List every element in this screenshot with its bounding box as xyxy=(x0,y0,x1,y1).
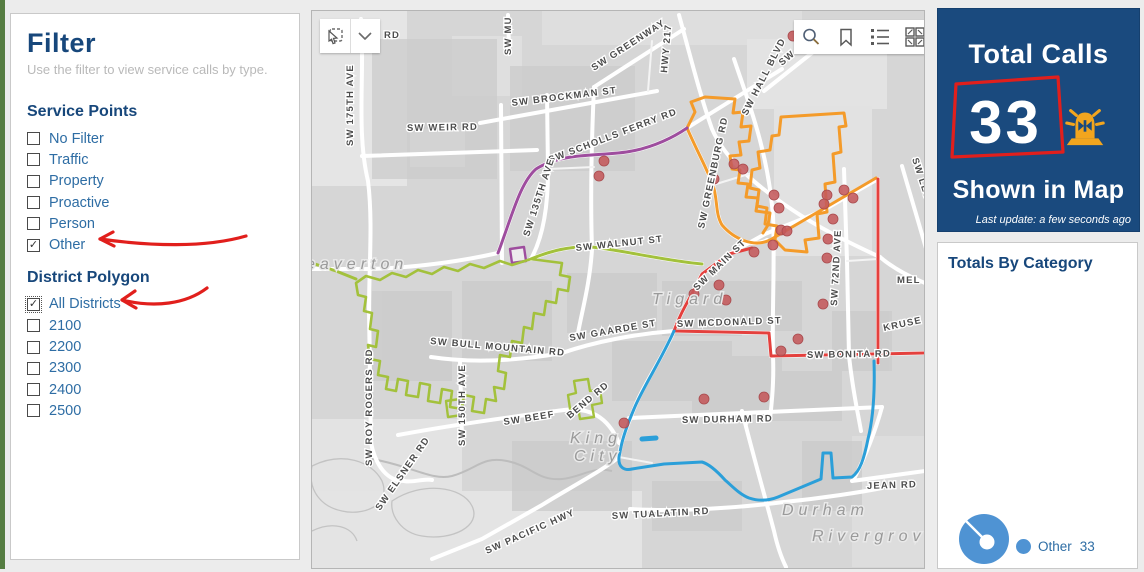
search-icon xyxy=(801,27,821,47)
checkbox[interactable]: ✓ xyxy=(27,239,40,252)
checkbox[interactable] xyxy=(27,196,40,209)
service-call-dot[interactable] xyxy=(819,199,829,209)
map-panel[interactable]: eavertonTigardKingCityDurhamRivergrove R… xyxy=(311,10,925,569)
street-label: SW 150TH AVE xyxy=(457,364,468,446)
checkbox-label: 2300 xyxy=(49,360,81,376)
district-polygon-header: District Polygon xyxy=(27,269,283,287)
select-dropdown-button[interactable] xyxy=(351,19,381,53)
checkbox-row-property[interactable]: Property xyxy=(27,171,283,192)
district-boundary-2500-blue-bar xyxy=(642,438,656,439)
checkbox-label: 2500 xyxy=(49,403,81,419)
service-call-dot[interactable] xyxy=(782,226,792,236)
service-call-dot[interactable] xyxy=(828,214,838,224)
service-call-dot[interactable] xyxy=(822,190,832,200)
service-call-dot[interactable] xyxy=(619,418,629,428)
legend-row-other[interactable]: Other 33 xyxy=(1016,539,1095,554)
total-calls-panel: Total Calls 33 Shown in Map Las xyxy=(937,8,1140,232)
checkbox[interactable] xyxy=(27,319,40,332)
service-call-dot[interactable] xyxy=(818,299,828,309)
legend-list-button[interactable] xyxy=(863,20,898,54)
service-call-dot[interactable] xyxy=(738,164,748,174)
checkbox-row-proactive[interactable]: Proactive xyxy=(27,192,283,213)
checkbox-label: Other xyxy=(49,237,85,253)
checkbox-row-person[interactable]: Person xyxy=(27,213,283,234)
checkbox-row-2500[interactable]: 2500 xyxy=(27,400,283,421)
checkbox-label: No Filter xyxy=(49,131,104,147)
legend-value: 33 xyxy=(1080,539,1095,554)
checkbox-row-all-districts[interactable]: ✓All Districts xyxy=(27,294,283,315)
service-call-dot[interactable] xyxy=(729,159,739,169)
street-label: SW BONITA RD xyxy=(807,349,891,361)
service-points-header: Service Points xyxy=(27,103,283,121)
city-label: Tigard xyxy=(652,291,727,308)
checkbox-label: Traffic xyxy=(49,152,88,168)
legend-swatch-other xyxy=(1016,539,1031,554)
checkbox[interactable] xyxy=(27,383,40,396)
checkbox-label: Person xyxy=(49,216,95,232)
checkbox-row-2100[interactable]: 2100 xyxy=(27,315,283,336)
service-call-dot[interactable] xyxy=(749,247,759,257)
checkbox-row-traffic[interactable]: Traffic xyxy=(27,149,283,170)
service-call-dot[interactable] xyxy=(759,392,769,402)
city-label: Rivergrove xyxy=(812,528,924,545)
service-call-dot[interactable] xyxy=(793,334,803,344)
checkbox-label: Proactive xyxy=(49,195,109,211)
service-call-dot[interactable] xyxy=(699,394,709,404)
street-label: SW DURHAM RD xyxy=(682,413,773,426)
service-call-dot[interactable] xyxy=(768,240,778,250)
filter-subtitle: Use the filter to view service calls by … xyxy=(27,62,283,77)
service-call-dot[interactable] xyxy=(839,185,849,195)
totals-by-category-panel: Totals By Category Other 33 xyxy=(937,242,1138,569)
checkbox-label: 2200 xyxy=(49,339,81,355)
select-tool-button[interactable] xyxy=(320,19,351,53)
checkbox-label: 2400 xyxy=(49,382,81,398)
left-edge-accent-strip xyxy=(0,0,5,569)
service-call-dot[interactable] xyxy=(776,346,786,356)
last-update-text: Last update: a few seconds ago xyxy=(976,214,1131,226)
city-label: City xyxy=(574,448,622,465)
chevron-down-icon xyxy=(357,31,373,41)
total-calls-title: Total Calls xyxy=(968,39,1108,70)
service-call-dot[interactable] xyxy=(774,203,784,213)
checkbox-row-no-filter[interactable]: No Filter xyxy=(27,128,283,149)
checkbox[interactable] xyxy=(27,153,40,166)
service-call-dot[interactable] xyxy=(599,156,609,166)
service-call-dot[interactable] xyxy=(769,190,779,200)
search-button[interactable] xyxy=(794,20,829,54)
street-label: RD xyxy=(384,30,400,41)
total-calls-value: 33 xyxy=(969,88,1042,158)
checkbox-row-2300[interactable]: 2300 xyxy=(27,358,283,379)
filter-panel: Filter Use the filter to view service ca… xyxy=(10,13,300,560)
basemap-gallery-button[interactable] xyxy=(898,20,926,54)
checkbox[interactable] xyxy=(27,341,40,354)
checkbox-label: 2100 xyxy=(49,318,81,334)
street-label: MEL xyxy=(897,275,921,286)
checkbox[interactable] xyxy=(27,404,40,417)
category-donut-chart[interactable] xyxy=(956,511,1012,572)
bookmark-icon xyxy=(838,28,854,47)
city-label: King xyxy=(570,430,622,447)
service-points-section: Service Points No FilterTrafficPropertyP… xyxy=(27,103,283,256)
district-polygon-section: District Polygon ✓All Districts210022002… xyxy=(27,269,283,422)
checkbox[interactable]: ✓ xyxy=(27,298,40,311)
street-label: SW ROY ROGERS RD xyxy=(364,348,375,466)
bookmark-button[interactable] xyxy=(829,20,864,54)
street-label: SW WEIR RD xyxy=(407,122,478,134)
checkbox-label: All Districts xyxy=(49,296,121,312)
street-label: SW MU xyxy=(503,16,514,55)
checkbox[interactable] xyxy=(27,217,40,230)
basemap-grid-icon xyxy=(905,27,925,47)
map-tools-toolbar xyxy=(794,20,925,54)
legend-list-icon xyxy=(870,28,890,46)
checkbox-row-other[interactable]: ✓Other xyxy=(27,234,283,255)
service-call-dot[interactable] xyxy=(848,193,858,203)
street-map[interactable]: eavertonTigardKingCityDurhamRivergrove R… xyxy=(312,11,924,568)
service-call-dot[interactable] xyxy=(594,171,604,181)
street-label: SW 175TH AVE xyxy=(345,64,356,146)
total-calls-subtitle: Shown in Map xyxy=(953,176,1125,205)
city-label: eaverton xyxy=(312,256,408,273)
checkbox[interactable] xyxy=(27,132,40,145)
checkbox-label: Property xyxy=(49,173,104,189)
street-label: JEAN RD xyxy=(867,479,917,492)
checkbox-row-2400[interactable]: 2400 xyxy=(27,379,283,400)
donut-hole xyxy=(980,535,995,550)
checkbox[interactable] xyxy=(27,362,40,375)
city-label: Durham xyxy=(782,502,869,519)
siren-icon xyxy=(1062,100,1108,148)
map-select-toolbar xyxy=(320,19,380,53)
service-call-dot[interactable] xyxy=(714,280,724,290)
filter-title: Filter xyxy=(27,28,283,59)
checkbox-row-2200[interactable]: 2200 xyxy=(27,336,283,357)
legend-label: Other xyxy=(1038,539,1072,554)
select-tool-icon xyxy=(325,26,345,46)
category-panel-header: Totals By Category xyxy=(938,243,1137,273)
checkbox[interactable] xyxy=(27,175,40,188)
